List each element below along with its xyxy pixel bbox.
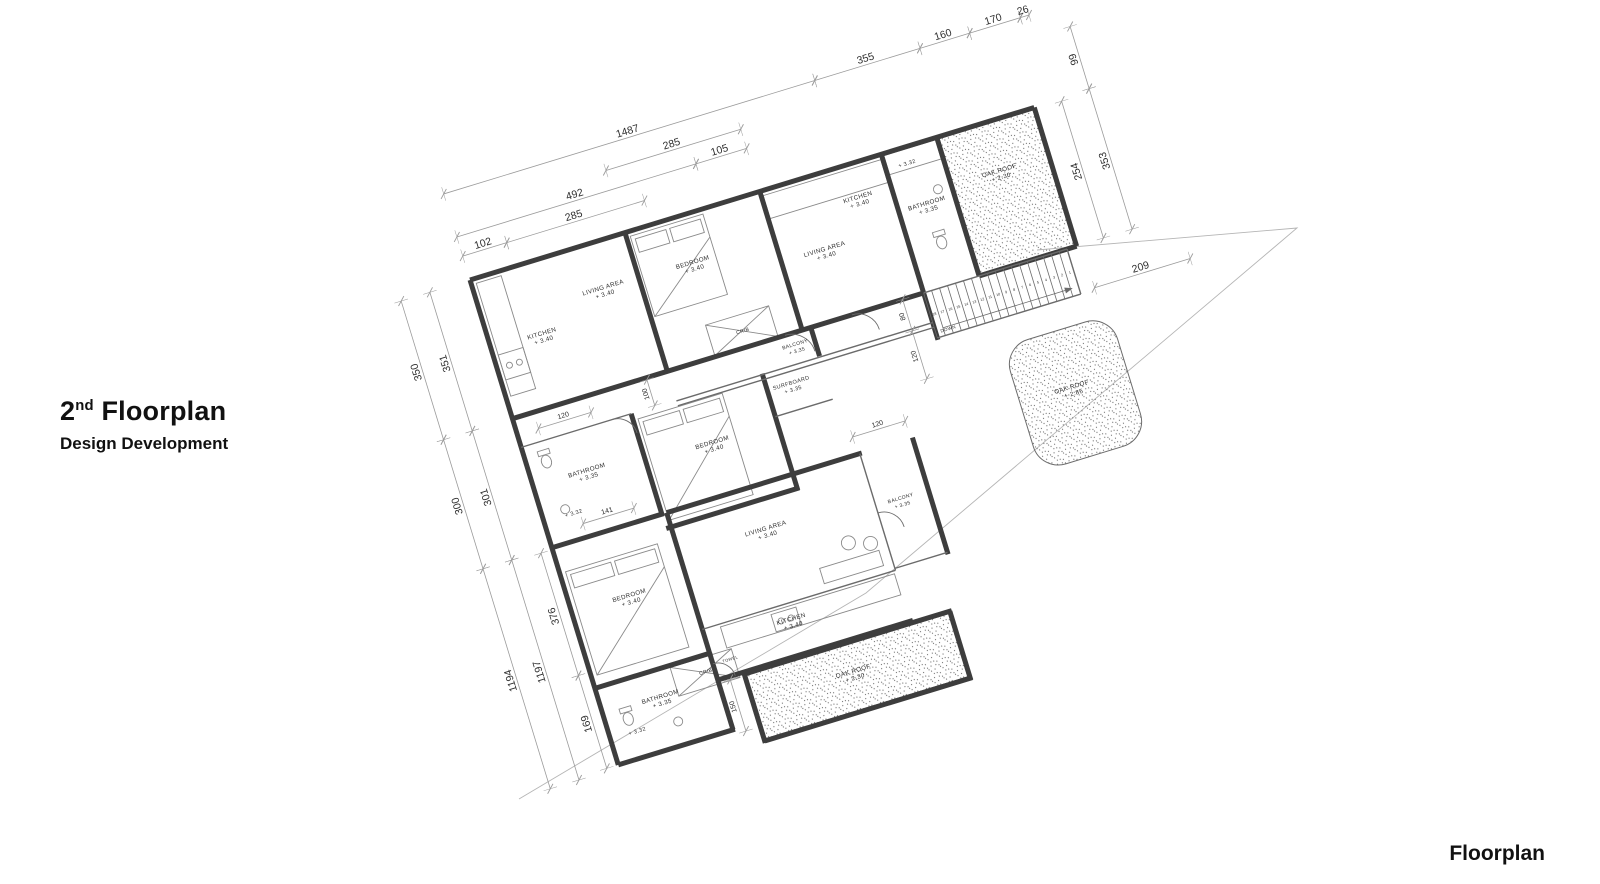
dimension-label: 105	[709, 142, 729, 159]
stair-tread-number: 2	[1060, 273, 1063, 277]
dimension-label: 301	[478, 487, 495, 507]
dimension-label: 350	[408, 362, 425, 382]
stair-tread-number: 7	[1021, 285, 1024, 289]
dimension-label: 492	[565, 186, 585, 203]
room-label: BALCONY+ 3.35	[887, 492, 917, 512]
room-label: CRIB	[699, 667, 714, 677]
roof-areas-layer	[613, 106, 1199, 739]
sofa	[820, 550, 884, 583]
dimension-label: 209	[1131, 259, 1151, 276]
stair-direction-arrow	[943, 290, 1065, 327]
dimension-label: 102	[473, 235, 493, 252]
stair-tread-number: 10	[996, 292, 1001, 297]
dimension-label: 80	[899, 312, 908, 322]
dimension-label: 170	[983, 11, 1003, 28]
dimension-label: 160	[933, 27, 953, 44]
stair-tread-number: 14	[964, 302, 969, 307]
footer-label: Floorplan	[1449, 842, 1545, 866]
sink	[673, 716, 684, 727]
stair-tread-number: 6	[1029, 283, 1032, 287]
room-label: LIVING AREA+ 3.40	[582, 278, 628, 304]
room-label: BATHROOM+ 3.35	[641, 688, 682, 713]
room-label: SURFBOARD+ 3.35	[772, 375, 812, 399]
stair-tread-number: 3	[1052, 275, 1055, 279]
room-label: BEDROOM+ 3.40	[695, 434, 732, 458]
title-block: 2nd Floorplan Design Development	[60, 396, 228, 454]
room-label: KITCHEN+ 3.40	[843, 190, 876, 212]
stair-tread-number: 4	[1045, 278, 1048, 282]
stair-tread-number: 8	[1013, 288, 1016, 292]
title-number: 2	[60, 396, 75, 426]
drawing-canvas: 1817161514131211109876543211487355160170…	[0, 0, 1600, 884]
title-text: Floorplan	[94, 396, 227, 426]
dimension-label: 351	[437, 353, 454, 373]
room-label: CRIB	[736, 327, 751, 337]
room-label: BATHROOM+ 3.35	[907, 195, 948, 220]
toilet	[622, 711, 635, 726]
oak-roof-area	[939, 110, 1074, 273]
dimension-label: 376	[546, 606, 563, 626]
floorplan-group: 1817161514131211109876543211487355160170…	[360, 0, 1293, 810]
room-label: + 3.32	[898, 159, 917, 170]
kitchen-counter	[763, 160, 888, 219]
stair-tread-number: 5	[1037, 280, 1040, 284]
room-label: BALCONY+ 3.35	[782, 338, 812, 358]
room-label: BEDROOM+ 3.40	[612, 587, 649, 611]
stair-tread-number: 9	[1005, 290, 1008, 294]
toilet	[540, 454, 553, 469]
chair	[862, 535, 879, 552]
stair-tread-number: 17	[940, 309, 945, 314]
page-title: 2nd Floorplan	[60, 396, 228, 427]
dimension-label: 99	[1066, 52, 1081, 67]
stove	[498, 347, 530, 379]
room-label: + 3.32	[628, 726, 647, 737]
sink	[932, 184, 943, 195]
dimension-label: 300	[449, 496, 466, 516]
stair-tread-number: 12	[980, 297, 985, 302]
chair	[840, 534, 857, 551]
dimension-label: 254	[1068, 161, 1085, 181]
room-label: BEDROOM+ 3.40	[675, 254, 712, 278]
stair-tread-number: 11	[988, 295, 993, 300]
title-ordinal: nd	[75, 398, 94, 414]
stair-tread-number: 1	[1068, 271, 1071, 275]
stair-tread-number: 18	[932, 312, 937, 317]
room-label: + 3.32	[565, 508, 584, 519]
room-label: LIVING AREA+ 3.40	[803, 240, 849, 266]
toilet	[935, 235, 948, 250]
stair-tread-number: 13	[972, 300, 977, 305]
door-arc	[878, 507, 904, 533]
dimension-label: 355	[855, 50, 875, 67]
dimension-label: 169	[579, 713, 596, 733]
dimension-label: 353	[1097, 150, 1114, 170]
dimension-label: 285	[564, 208, 584, 225]
page-subtitle: Design Development	[60, 434, 228, 454]
room-label: BATHROOM+ 3.35	[567, 462, 608, 487]
stair-tread-number: 16	[948, 307, 953, 312]
room-label: LIVING AREA+ 3.40	[744, 519, 790, 545]
dimension-label: 285	[661, 136, 681, 153]
room-label: KITCHEN+ 3.40	[527, 326, 560, 348]
floorplan-svg: 1817161514131211109876543211487355160170…	[0, 0, 1600, 884]
stair-tread-number: 15	[956, 304, 961, 309]
